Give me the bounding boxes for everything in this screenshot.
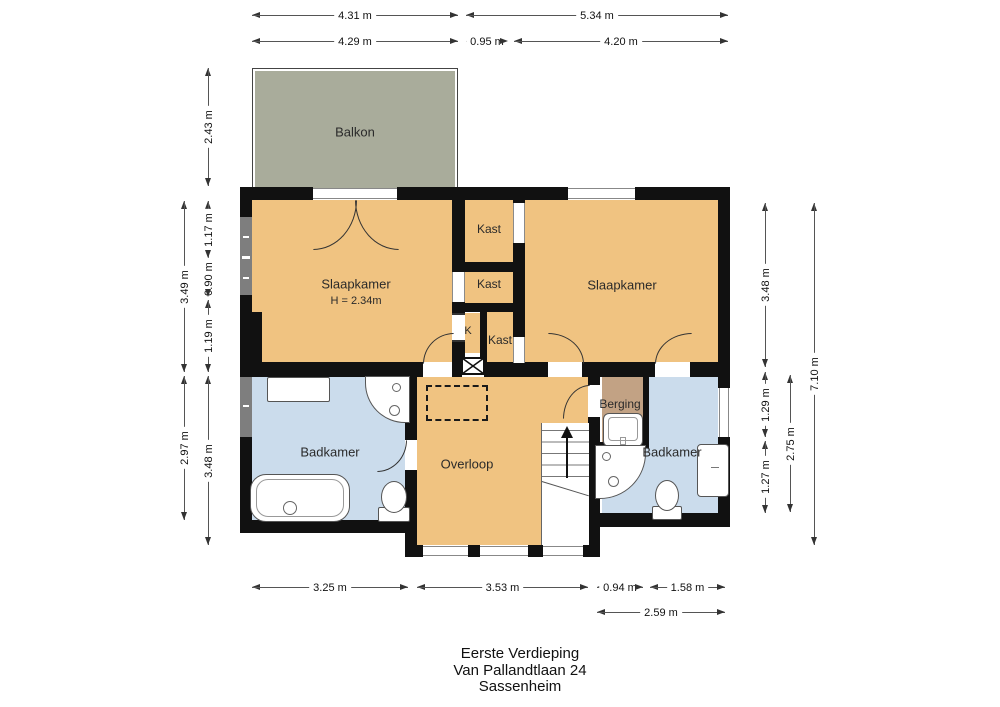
dimension-top-420: 4.20 m (514, 36, 728, 47)
label-kast-bottom: Kast (488, 333, 512, 347)
label-slaapkamer-left: Slaapkamer (321, 277, 390, 292)
wall (582, 362, 655, 377)
dimension-label: 2.43 m (203, 106, 215, 148)
window-divider (242, 256, 250, 259)
label-ceiling-height: H = 2.34m (330, 295, 381, 307)
dimension-label: 3.48 m (760, 264, 772, 306)
label-berging: Berging (599, 397, 640, 411)
label-kast-top: Kast (477, 222, 501, 236)
label-badkamer-right: Badkamer (642, 445, 701, 460)
wall (240, 187, 252, 217)
dimension-label: 1.29 m (760, 384, 772, 426)
dimension-left-297: 2.97 m (179, 376, 190, 520)
wall (635, 187, 730, 200)
plan-title: Eerste Verdieping Van Pallandtlaan 24 Sa… (453, 646, 586, 696)
window-overloop-bottom-1 (423, 546, 468, 556)
dimension-right-275: 2.75 m (785, 375, 796, 512)
wall (583, 545, 600, 557)
wall (397, 187, 568, 200)
dimension-label: 2.75 m (785, 423, 797, 465)
window-badkamer-right (719, 388, 729, 437)
wall (452, 262, 525, 272)
label-slaapkamer-right: Slaapkamer (587, 278, 656, 293)
toilet-bowl-left (381, 481, 407, 513)
wall (528, 545, 543, 557)
bathtub-inner (256, 479, 344, 517)
dimension-label: 5.34 m (576, 10, 618, 22)
shower-drain (389, 405, 400, 416)
wall (690, 362, 730, 377)
title-city: Sassenheim (453, 679, 586, 696)
dimension-label: 4.31 m (334, 10, 376, 22)
door-kast-top (513, 203, 525, 243)
shower-drain (608, 476, 619, 487)
berging-sink-tap (620, 437, 626, 445)
title-floor: Eerste Verdieping (453, 646, 586, 663)
dimension-label: 3.49 m (179, 266, 191, 308)
dimension-label: 7.10 m (809, 353, 821, 395)
dimension-left-119: 1.19 m (203, 300, 214, 372)
dimension-left-117: 1.17 m (203, 201, 214, 258)
dimension-right-129: 1.29 m (760, 372, 771, 437)
dimension-bottom-353: 3.53 m (417, 582, 588, 593)
dimension-label: 1.27 m (760, 456, 772, 498)
dimension-label: 1.17 m (203, 209, 215, 251)
wall (588, 377, 600, 385)
wall (643, 377, 649, 448)
window-overloop-bottom-2 (480, 546, 528, 556)
title-address: Van Pallandtlaan 24 (453, 663, 586, 680)
dimension-left-243: 2.43 m (203, 68, 214, 186)
berging-sink (603, 413, 643, 447)
stair-break-line (542, 481, 589, 496)
label-overloop: Overloop (441, 457, 494, 472)
dimension-bottom-158: 1.58 m (650, 582, 725, 593)
window-badkamer-left (240, 377, 252, 437)
dimension-top-534: 5.34 m (466, 10, 728, 21)
wall (468, 545, 480, 557)
dimension-label: 2.97 m (179, 427, 191, 469)
wall (240, 362, 423, 377)
dimension-label: 3.48 m (203, 440, 215, 482)
staircase (541, 423, 589, 545)
dimension-label: 4.20 m (600, 36, 642, 48)
dimension-label: 4.29 m (334, 36, 376, 48)
shower-tray-mark (711, 467, 719, 468)
dimension-bottom-259: 2.59 m (597, 607, 725, 618)
toilet-bowl-right (655, 480, 679, 511)
door-kast-middle (452, 272, 465, 302)
cabinet (267, 377, 330, 402)
sink-tap (392, 383, 401, 392)
window-divider (243, 405, 249, 407)
wall (513, 243, 525, 337)
window-slaapkamer-right-top (568, 188, 635, 199)
dimension-top-095: 0.95 m (466, 36, 508, 47)
label-kast-small: K (464, 325, 471, 337)
wall (718, 187, 730, 388)
dimension-label: 1.58 m (667, 582, 709, 594)
window-overloop-bottom-3 (543, 546, 583, 556)
dimension-left-348: 3.48 m (203, 376, 214, 545)
wall (480, 312, 487, 362)
dashed-opening (426, 385, 488, 421)
wall (405, 545, 423, 557)
dimension-left-090: 0.90 m (203, 261, 214, 297)
dimension-bottom-325: 3.25 m (252, 582, 408, 593)
stair-direction-line (566, 438, 568, 478)
bathtub-faucet (283, 501, 297, 515)
balkon-door-frame (313, 188, 397, 199)
door-kast-bottom (513, 337, 525, 363)
dimension-right-348: 3.48 m (760, 203, 771, 367)
floorplan-canvas: 4.31 m 5.34 m 4.29 m 0.95 m 4.20 m 2.43 … (0, 0, 1000, 707)
bathtub (250, 474, 350, 522)
label-badkamer-left: Badkamer (300, 445, 359, 460)
dimension-top-429: 4.29 m (252, 36, 458, 47)
dimension-label: 3.25 m (309, 582, 351, 594)
label-kast-middle: Kast (477, 277, 501, 291)
stair-direction-arrow (561, 426, 573, 438)
shower-tray (697, 444, 729, 497)
window-divider (243, 277, 249, 279)
wall (452, 303, 525, 312)
shaft-icon (461, 357, 485, 375)
shower-head (602, 452, 611, 461)
dimension-label: 3.53 m (482, 582, 524, 594)
dimension-bottom-094: 0.94 m (597, 582, 643, 593)
wall (484, 362, 548, 377)
dimension-right-127: 1.27 m (760, 441, 771, 513)
dimension-label: 1.19 m (203, 315, 215, 357)
dimension-label: 2.59 m (640, 607, 682, 619)
dimension-right-710: 7.10 m (809, 203, 820, 545)
dimension-top-431: 4.31 m (252, 10, 458, 21)
dimension-left-349: 3.49 m (179, 201, 190, 372)
window-divider (243, 236, 249, 238)
label-balkon: Balkon (335, 125, 375, 140)
